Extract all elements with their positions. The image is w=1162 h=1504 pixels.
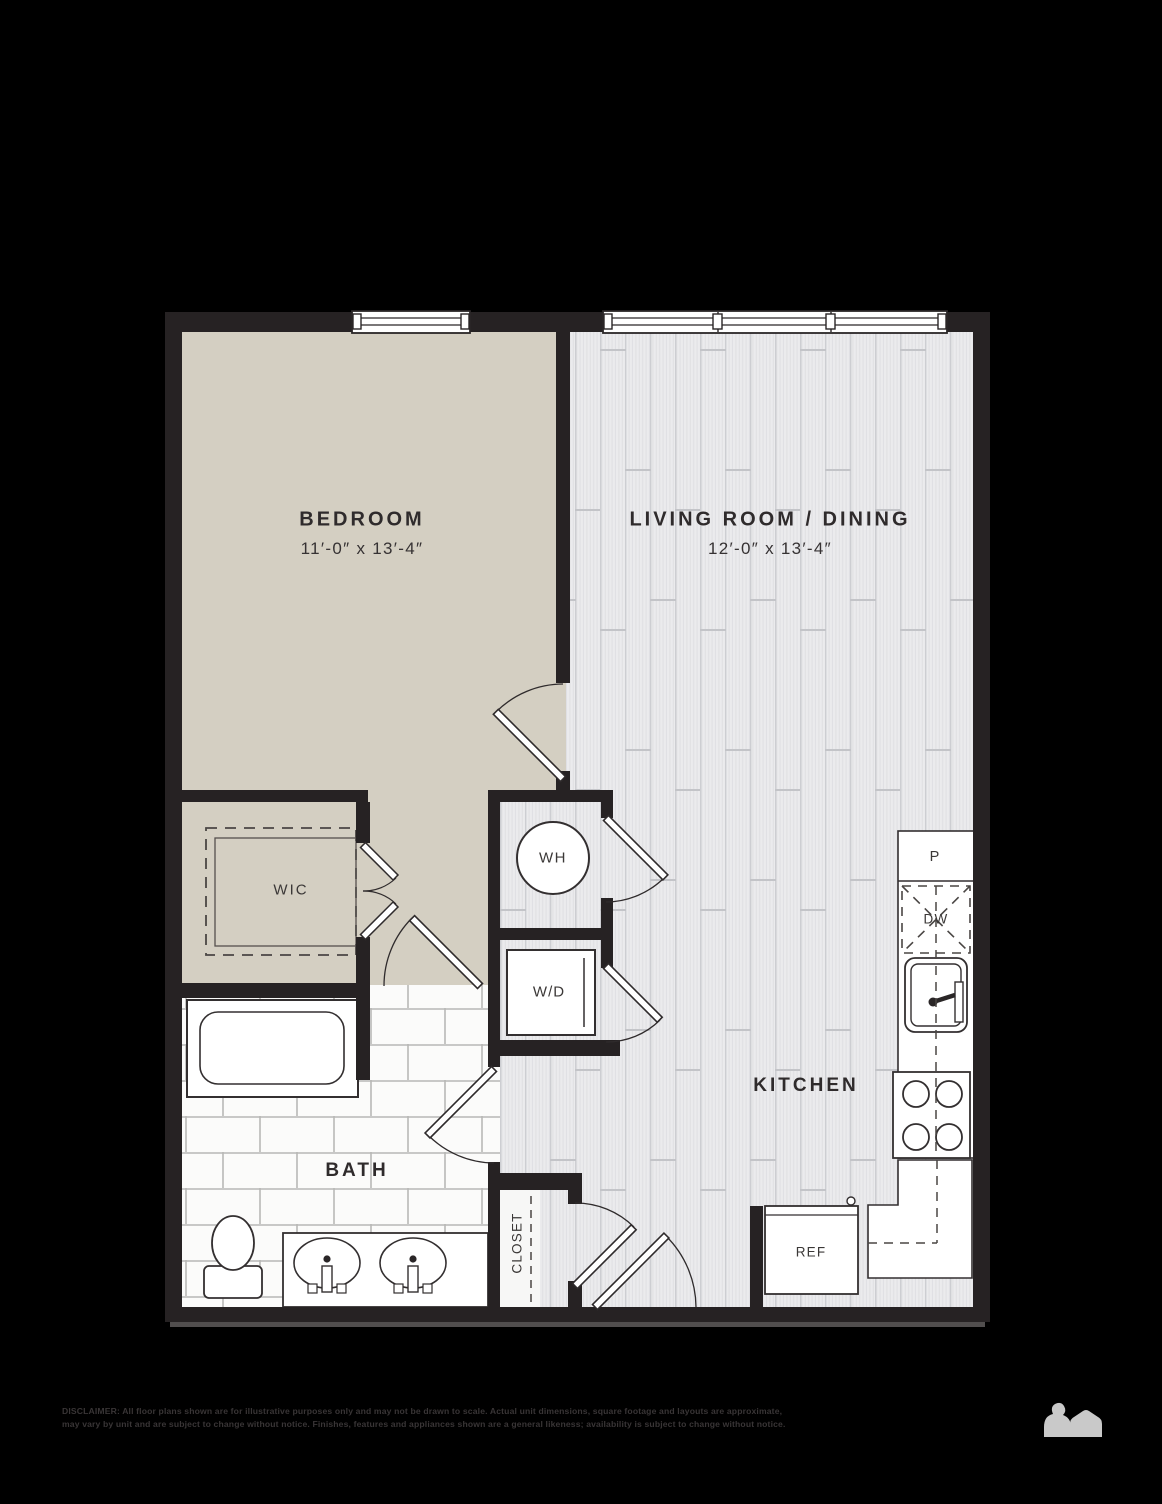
- vanity-double-sink: [283, 1233, 488, 1307]
- floors: [182, 332, 974, 1307]
- bedroom-label: BEDROOM: [299, 509, 424, 532]
- water-heater-label: WH: [539, 850, 567, 867]
- disclaimer-line-2: may vary by unit and are subject to chan…: [62, 1419, 786, 1429]
- refrigerator-label: REF: [796, 1245, 827, 1260]
- bedroom-window: [352, 311, 470, 333]
- kitchen-label: KITCHEN: [753, 1075, 858, 1097]
- floor-plan-drawing: [0, 0, 1162, 1504]
- plan-shadow: [170, 1322, 985, 1327]
- bath-label: BATH: [325, 1160, 388, 1182]
- living-dining-dimensions: 12′-0″ x 13′-4″: [708, 539, 832, 559]
- living-room-window: [603, 311, 947, 333]
- hall-floor: [500, 1056, 566, 1173]
- wic-label: WIC: [273, 882, 308, 899]
- bath-vestibule-floor: [370, 985, 488, 998]
- windows: [352, 311, 947, 333]
- hall-wic-floor: [182, 795, 488, 998]
- pantry-label: P: [930, 849, 941, 865]
- floor-plan-page: BEDROOM 11′-0″ x 13′-4″ LIVING ROOM / DI…: [0, 0, 1162, 1504]
- washer-dryer-label: W/D: [533, 984, 565, 1001]
- dishwasher-label: DW: [924, 912, 949, 927]
- bedroom-dimensions: 11′-0″ x 13′-4″: [301, 539, 424, 559]
- living-dining-label: LIVING ROOM / DINING: [629, 509, 910, 532]
- entry-closet-label: CLOSET: [510, 1212, 525, 1273]
- bath-doorway-floor: [488, 1067, 500, 1162]
- bathtub: [187, 1000, 358, 1097]
- disclaimer-line-1: DISCLAIMER: All floor plans shown are fo…: [62, 1406, 782, 1416]
- brand-logo-icon: [1044, 1403, 1102, 1437]
- stove: [893, 1072, 970, 1158]
- entry-closet-floor-edge: [540, 1190, 568, 1307]
